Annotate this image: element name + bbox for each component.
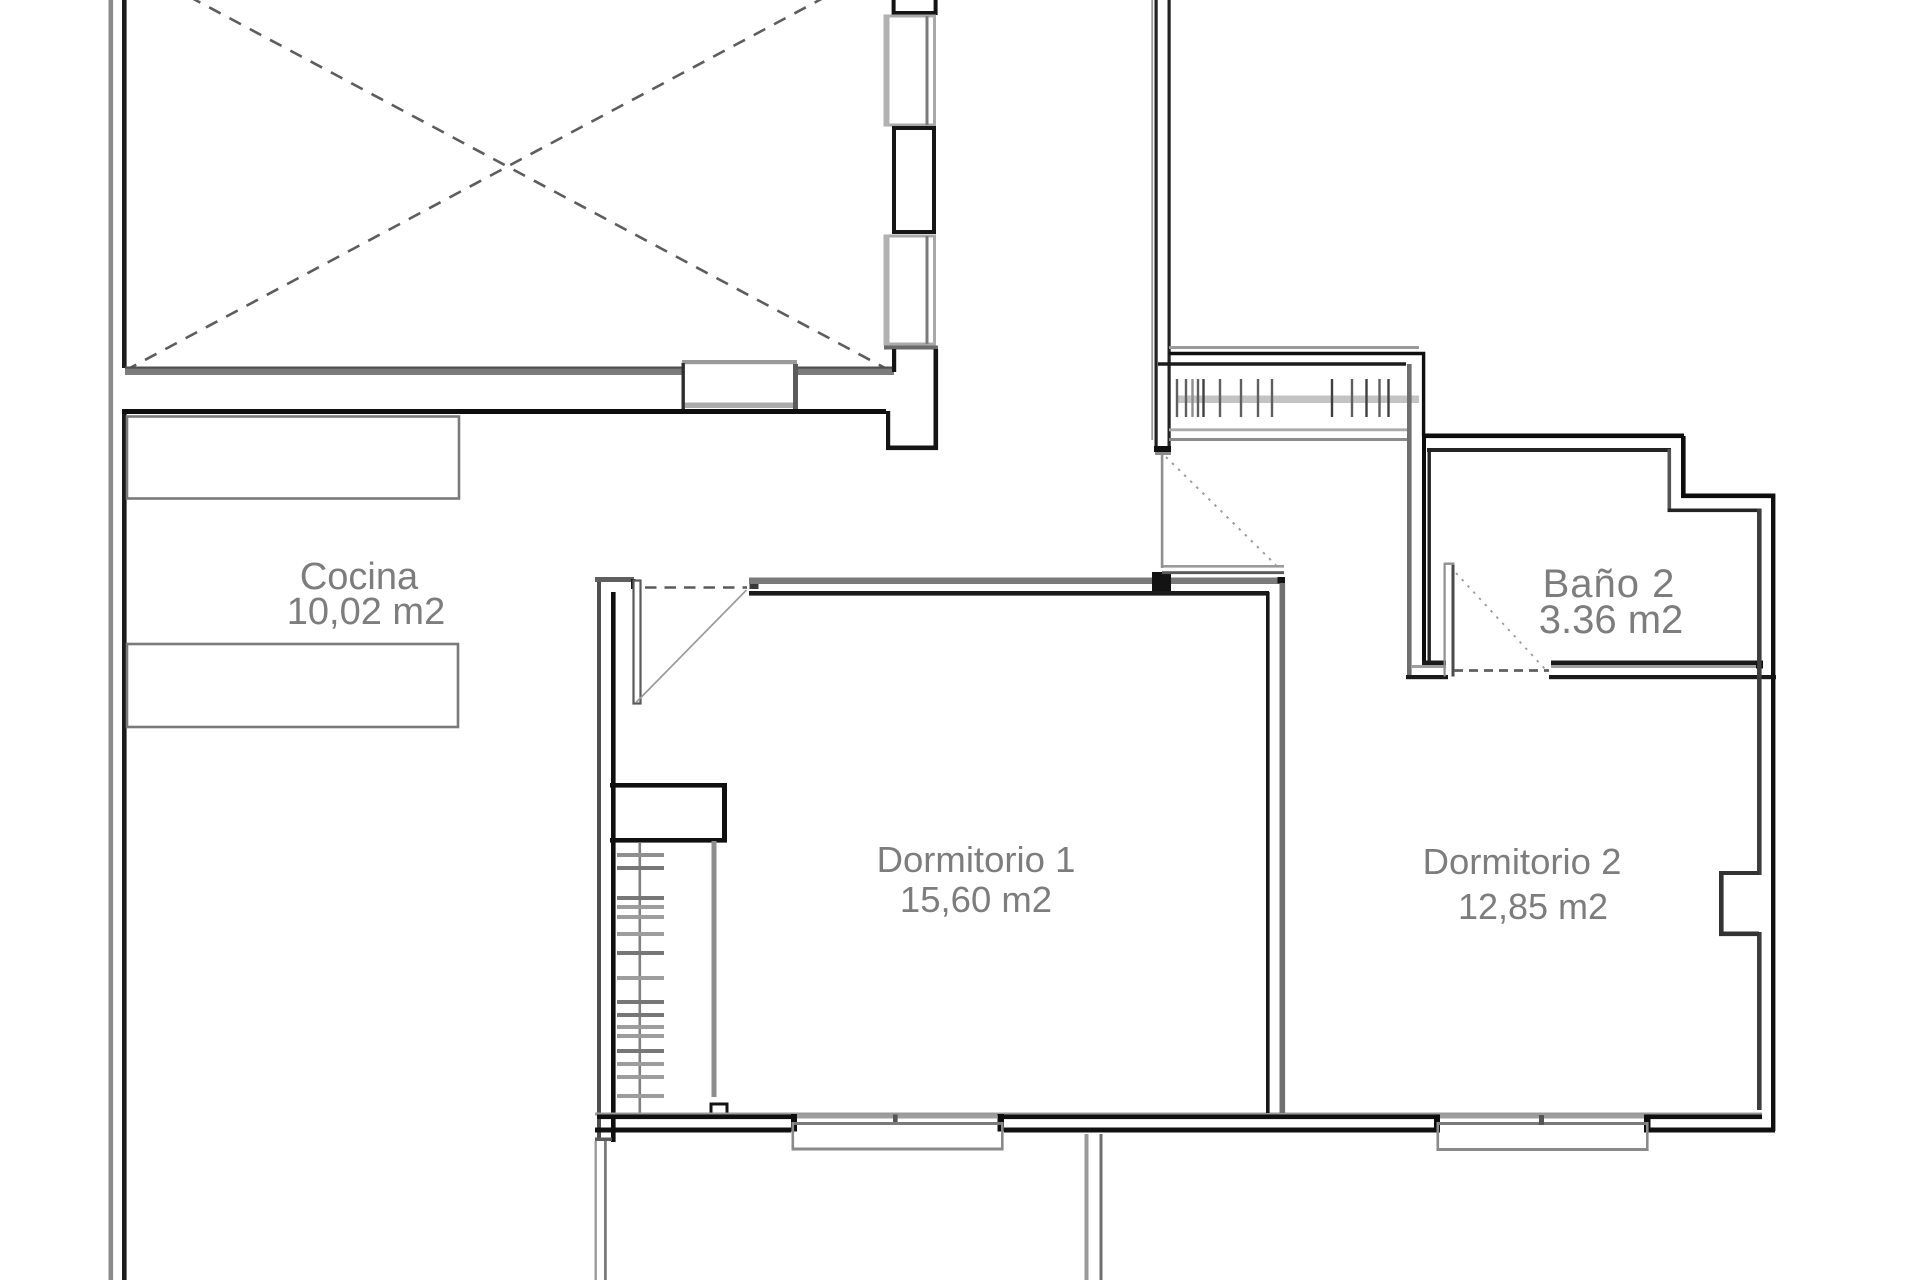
svg-text:Dormitorio 1: Dormitorio 1: [877, 839, 1076, 880]
svg-text:10,02 m2: 10,02 m2: [287, 591, 445, 633]
svg-text:12,85 m2: 12,85 m2: [1458, 886, 1608, 927]
svg-text:3.36 m2: 3.36 m2: [1539, 598, 1684, 642]
svg-text:Dormitorio 2: Dormitorio 2: [1423, 841, 1622, 882]
svg-text:15,60 m2: 15,60 m2: [900, 879, 1052, 920]
